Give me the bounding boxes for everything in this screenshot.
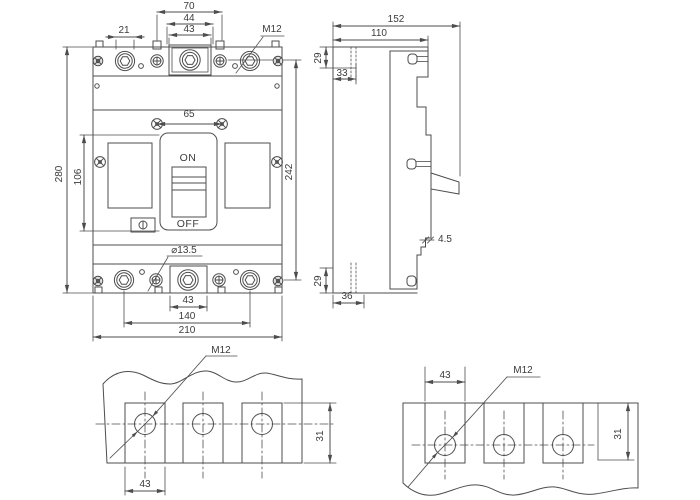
side-view: 152 110 29 33 4.5 29 [313,14,460,308]
terminal-screw [213,274,225,286]
dim-label-m12-left: M12 [211,345,231,356]
dim-label-70: 70 [183,1,195,12]
dim-label-36: 36 [341,291,353,302]
mount-tab [96,41,103,47]
detail-view-bottom-right: 43 M12 31 [403,365,638,495]
mount-foot [275,287,282,293]
dim-label-44: 44 [183,13,195,24]
cover-profile-upper [417,47,431,174]
case-screw [273,56,283,66]
dim-31-right: 31 [598,403,634,460]
dim-label-29-top: 29 [313,52,324,64]
top-terminals [93,50,301,88]
dim-4-5: 4.5 [420,234,452,245]
mount-foot [218,287,225,293]
switch-off-label: OFF [177,218,200,230]
rating-window-right [225,143,270,208]
dim-label-dia-13-5: ⌀13.5 [171,245,197,256]
terminal-strip-outline [103,371,302,463]
dim-label-m12-top: M12 [262,24,282,35]
dim-110: 110 [333,28,428,46]
case-screw [273,276,283,286]
dim-label-21: 21 [118,25,130,36]
dim-label-31-left: 31 [315,430,326,442]
dim-label-43-right: 43 [439,370,451,381]
mount-tab [272,41,279,47]
control-panel: ON OFF [95,119,283,232]
dim-43-left: 43 [125,467,165,495]
case-screw [93,276,103,286]
terminal-clamp-side [408,54,417,64]
handle-recess [160,133,217,230]
callout-m12-right: M12 [408,365,540,487]
mccb-dimension-drawing: ON OFF 70 44 43 [0,0,700,500]
mount-foot [95,287,102,293]
dim-65: 65 [157,109,222,124]
detail-view-bottom-left: M12 31 43 [96,345,336,495]
dim-21: 21 [106,25,144,49]
dim-label-43-bottom: 43 [182,295,194,306]
terminal-lug-center [180,50,200,70]
case-screw [93,56,103,66]
dim-43-top: 43 [169,24,211,44]
dim-43-bottom: 43 [170,295,207,311]
mount-foot [155,287,162,293]
terminal-lug-center [178,270,198,290]
dim-label-4-5: 4.5 [438,234,452,245]
dim-242: 242 [284,60,301,280]
toggle-handle [172,167,206,217]
terminal-lug [115,51,134,70]
bottom-terminals [93,270,283,291]
dim-label-29-bottom: 29 [313,275,324,287]
terminal-screw [151,55,163,67]
dim-label-43-left: 43 [139,479,151,490]
dim-label-110: 110 [371,28,387,39]
dim-label-65: 65 [183,109,195,120]
dim-label-242: 242 [284,163,295,180]
accessory-clamp-side [407,159,416,169]
dim-29-bottom: 29 [313,268,333,293]
dim-43-right: 43 [425,367,465,401]
dim-label-43-top: 43 [183,24,195,35]
dim-label-210: 210 [179,325,196,336]
dim-label-280: 280 [54,165,65,182]
front-view: ON OFF 70 44 43 [54,1,301,341]
dim-33: 33 [333,64,356,84]
rating-window-left [108,143,152,208]
dim-label-106: 106 [73,168,84,185]
terminal-lug [240,270,259,289]
terminal-screw [214,55,226,67]
dim-29-top: 29 [313,47,356,68]
terminal-strip-outline [403,403,638,495]
dim-label-140: 140 [179,311,196,322]
side-toggle-handle [431,173,459,194]
dim-36: 36 [333,291,364,308]
mount-tab [153,41,161,49]
switch-on-label: ON [180,152,197,164]
callout-m12-left: M12 [110,345,237,458]
dim-label-31-right: 31 [613,428,624,440]
dim-152: 152 [333,14,460,176]
technical-drawing-page: ON OFF 70 44 43 [0,0,700,500]
side-body [333,47,459,293]
cover-screw [272,157,283,168]
dim-label-33: 33 [336,68,348,79]
cover-screw [95,157,106,168]
dim-31-left: 31 [284,403,336,463]
cover-profile-lower [417,189,431,289]
dim-106: 106 [73,135,159,231]
terminal-clamp-side [407,276,416,286]
dim-label-m12-right: M12 [513,365,533,376]
dim-label-152: 152 [388,14,405,25]
mount-tab [216,41,224,49]
terminal-lug [114,270,133,289]
